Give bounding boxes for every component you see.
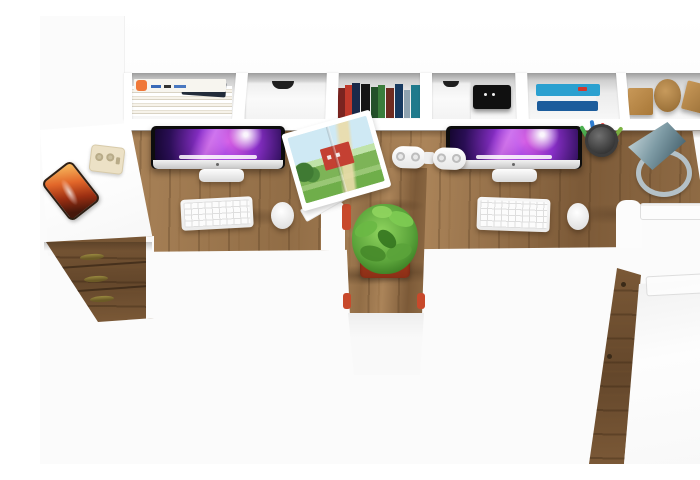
cubby-drawer-left — [244, 73, 328, 120]
drawer-handle[interactable] — [80, 253, 104, 261]
imac-right-screen — [446, 126, 582, 169]
magazine-logo — [136, 80, 147, 91]
hutch-drawer-front[interactable] — [245, 81, 327, 120]
drawer-separator — [58, 285, 154, 294]
mouse-left[interactable] — [271, 202, 294, 229]
desk-leg-gap-right — [616, 200, 642, 248]
red-bracket — [343, 293, 351, 309]
drawer-finger-notch — [272, 81, 294, 89]
plant-frond — [352, 218, 380, 241]
blue-book-red-label — [578, 87, 587, 91]
magazine-title-row — [151, 84, 221, 88]
phone-screen-highlight — [58, 177, 82, 208]
product-photo-desk-topview: Top-down product photo: two-person L-sha… — [40, 16, 700, 464]
cubby-magazines — [130, 73, 236, 120]
cabinet-tray-lip — [646, 272, 700, 297]
black-storage-device — [473, 85, 511, 109]
drawer-handle[interactable] — [90, 295, 114, 303]
wood-block-wedge — [681, 80, 700, 114]
magazine-title-dash — [151, 85, 161, 88]
barn-window — [327, 155, 332, 160]
power-socket — [411, 152, 420, 161]
cubby-divider — [515, 73, 529, 120]
cubby-divider — [325, 73, 339, 120]
book-spine — [404, 90, 410, 118]
keyboard-right[interactable] — [476, 197, 550, 233]
device-led — [492, 93, 495, 96]
return-desk-shadow — [44, 242, 152, 251]
keyboard-left[interactable] — [180, 196, 254, 231]
imac-left-dock — [179, 155, 257, 159]
mesh-pen-cup — [585, 124, 618, 157]
plant-frond — [359, 243, 388, 264]
wood-block-cylinder — [654, 79, 681, 112]
imac-left-chin — [153, 160, 283, 169]
blue-book-top — [536, 84, 600, 96]
acrylic-tray-edge — [640, 203, 700, 220]
power-socket — [452, 154, 461, 163]
keyboard-right-keys — [480, 200, 548, 229]
cabinet-knob[interactable] — [621, 282, 626, 287]
power-socket — [396, 152, 405, 161]
adapter-socket — [95, 153, 104, 162]
drawer-separator — [50, 260, 154, 269]
small-drawer-front[interactable] — [431, 81, 471, 120]
imac-right-chin — [448, 160, 580, 169]
power-strip-segment — [433, 147, 467, 170]
keyboard-left-keys — [183, 199, 250, 227]
magazine-title-dash — [174, 85, 186, 88]
small-drawer-notch — [443, 81, 459, 87]
imac-right-stand — [492, 169, 537, 182]
top-magazine-cover — [134, 79, 226, 92]
book-spine — [386, 88, 394, 118]
red-bracket — [417, 293, 425, 309]
book-spine — [411, 85, 420, 118]
plant-foliage — [352, 204, 418, 274]
magazine-photo — [287, 116, 385, 204]
socket-adapter — [88, 144, 125, 175]
adapter-switch — [116, 157, 121, 164]
drawer-handle[interactable] — [84, 275, 108, 283]
book-spine — [395, 84, 403, 118]
power-strip-segment — [392, 146, 427, 169]
adapter-socket — [106, 153, 115, 162]
wood-block-cube — [628, 88, 653, 115]
cubby-device — [430, 73, 518, 120]
book-spine — [378, 85, 385, 118]
apple-logo — [216, 163, 219, 166]
device-led — [484, 93, 487, 96]
imac-right-dock — [476, 155, 552, 159]
cubby-blocks — [626, 73, 700, 120]
hutch-top-panel — [124, 16, 700, 74]
mouse-right[interactable] — [567, 203, 589, 230]
magazine-title-dash — [164, 85, 171, 88]
power-strip — [392, 143, 467, 174]
cubby-end-cap — [124, 73, 132, 120]
imac-left-screen — [151, 126, 285, 169]
cabinet-knob[interactable] — [607, 354, 612, 359]
imac-left-stand — [199, 169, 244, 182]
cubby-divider — [420, 73, 432, 120]
apple-logo — [512, 163, 515, 166]
console-white-panel — [344, 312, 428, 376]
power-socket — [437, 153, 446, 162]
